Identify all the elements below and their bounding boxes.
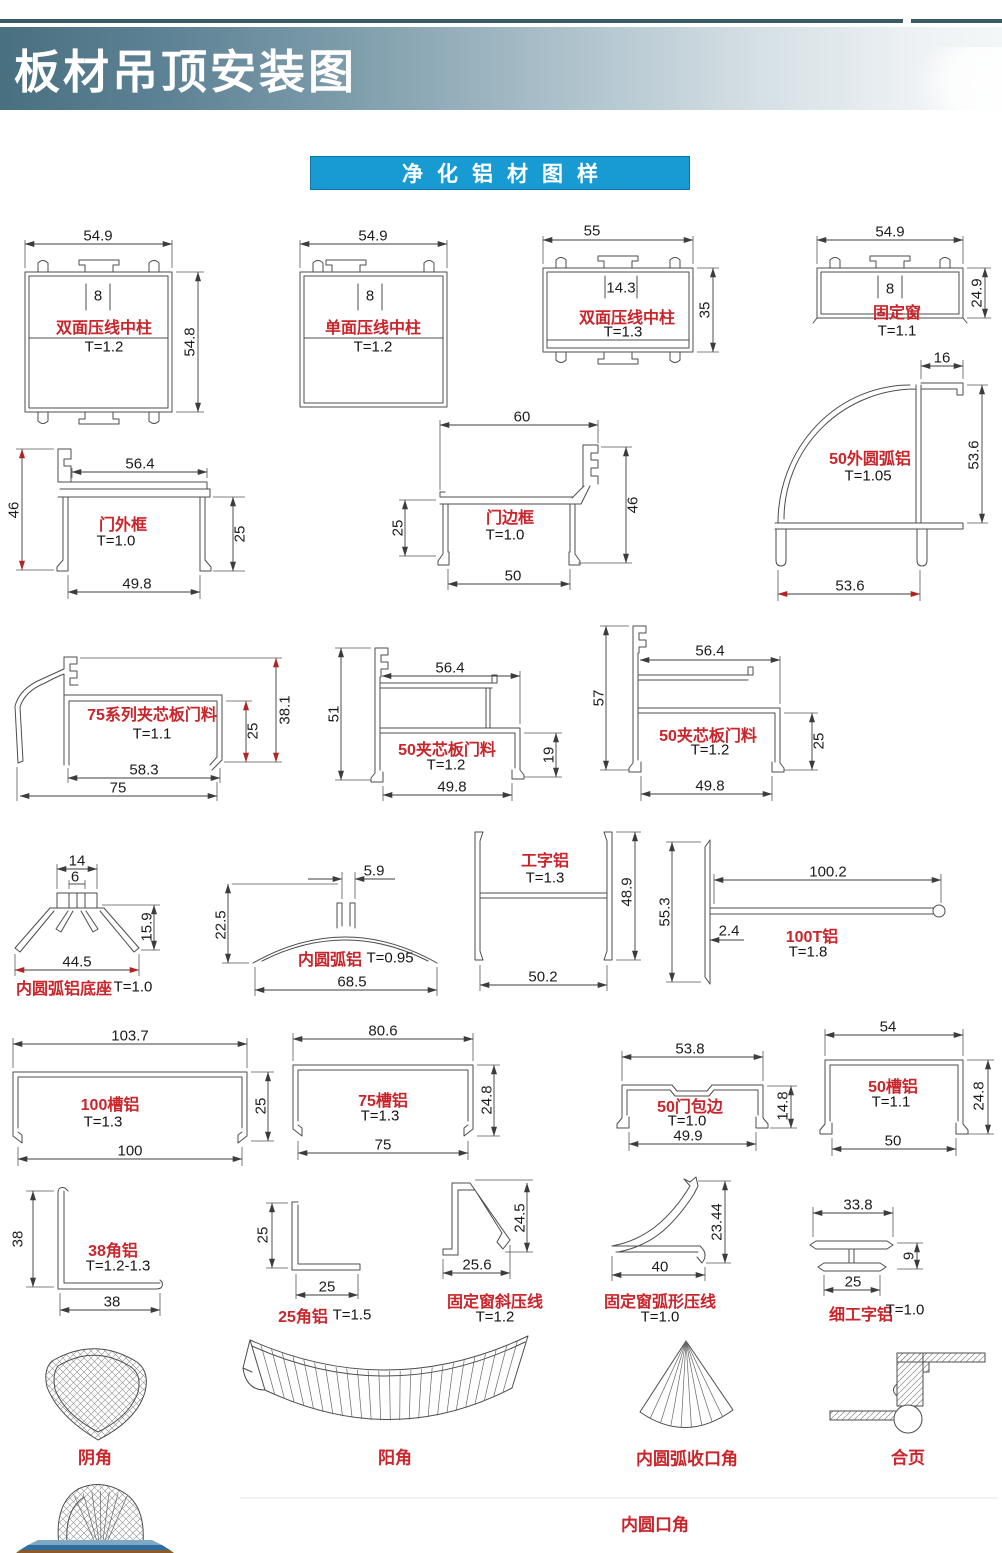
page: 板材吊顶安装图 净化铝材图样 — [0, 0, 1002, 1553]
thickness: T=0.95 — [366, 950, 413, 967]
drawing-double-press-column-2 — [543, 236, 719, 364]
thickness: T=1.2 — [354, 339, 393, 356]
dim-right: 24.8 — [479, 1085, 496, 1114]
dim-side: 24.9 — [969, 278, 986, 307]
dim-bottom: 44.5 — [62, 954, 91, 971]
thickness: T=1.3 — [84, 1114, 123, 1131]
dim-right: 24.5 — [512, 1203, 529, 1232]
thickness: T=1.5 — [333, 1307, 372, 1324]
dim-top: 103.7 — [111, 1028, 149, 1045]
thickness: T=1.2 — [476, 1309, 515, 1326]
profile-name: 门外框 — [99, 511, 147, 535]
dim-right: 9 — [901, 1252, 918, 1260]
dim-bottom: 49.8 — [122, 576, 151, 593]
dim-bottom: 40 — [652, 1259, 669, 1276]
profile-name: 内圆弧铝底座 — [16, 975, 112, 999]
dim-bottom: 68.5 — [337, 974, 366, 991]
drawing-inside-corner — [46, 1349, 147, 1440]
profile-name: 工字铝 — [521, 847, 569, 871]
dim-top: 56.4 — [125, 456, 154, 473]
dim-top: 16 — [934, 350, 951, 367]
dim-right-outer: 38.1 — [277, 695, 294, 724]
accessory-label-hinge: 合页 — [891, 1444, 925, 1469]
dim-top: 54.9 — [358, 228, 387, 245]
dim-right: 53.6 — [966, 440, 983, 469]
profile-name: 固定窗 — [873, 299, 921, 323]
profile-name: 内圆弧铝 — [298, 946, 362, 970]
dim-bottom-inner: 58.3 — [129, 762, 158, 779]
dim-top: 80.6 — [368, 1023, 397, 1040]
dim-right: 25 — [253, 1098, 270, 1115]
dim-right: 14.8 — [775, 1091, 792, 1120]
thickness: T=1.2 — [691, 742, 730, 759]
dim-right: 46 — [625, 497, 642, 514]
thickness: T=1.3 — [604, 324, 643, 341]
accessory-label-outside-corner: 阳角 — [378, 1444, 412, 1469]
thickness: T=1.0 — [641, 1309, 680, 1326]
drawing-100-channel — [13, 1038, 274, 1166]
dim-right-inner: 25 — [245, 723, 262, 740]
thickness: T=1.8 — [789, 944, 828, 961]
dim-side: 35 — [697, 302, 714, 319]
accessory-label-inside-corner: 阴角 — [78, 1444, 112, 1469]
dim-left: 57 — [591, 690, 608, 707]
dim-bottom: 49.9 — [673, 1128, 702, 1145]
thickness: T=1.0 — [97, 533, 136, 550]
thickness: T=1.0 — [886, 1302, 925, 1319]
profile-name: 75系列夹芯板门料 — [87, 701, 217, 725]
thickness: T=1.2 — [427, 757, 466, 774]
dim-slot: 8 — [366, 288, 374, 305]
dim-top: 56.4 — [695, 643, 724, 660]
dim-bottom: 100 — [117, 1143, 142, 1160]
bottom-left-strip-decoration — [16, 1540, 174, 1553]
dim-web: 2.4 — [719, 923, 740, 940]
thickness: T=1.0 — [114, 979, 153, 996]
dim-left: 51 — [326, 706, 343, 723]
dim-bottom: 25 — [319, 1279, 336, 1296]
dim-top: 53.8 — [675, 1041, 704, 1058]
dim-top: 54.9 — [875, 224, 904, 241]
thickness: T=1.3 — [361, 1108, 400, 1125]
thickness: T=1.2 — [85, 339, 124, 356]
dim-top: 54 — [880, 1019, 897, 1036]
dim-slot: 14.3 — [606, 280, 635, 297]
dim-left: 25 — [390, 520, 407, 537]
dim-left: 55.3 — [657, 897, 674, 926]
dim-bottom: 25.6 — [462, 1257, 491, 1274]
dim-right: 25 — [232, 526, 249, 543]
dim-right: 19 — [541, 747, 558, 764]
dim-bottom: 49.8 — [437, 779, 466, 796]
thickness: T=1.2-1.3 — [86, 1258, 151, 1275]
dim-top: 60 — [514, 409, 531, 426]
profile-name: 双面压线中柱 — [56, 314, 152, 338]
drawing-100t-aluminium — [666, 840, 945, 984]
dim-side: 54.8 — [182, 327, 199, 356]
dim-slot: 6 — [71, 869, 79, 886]
dim-right: 23.44 — [709, 1203, 726, 1241]
profile-name: 单面压线中柱 — [325, 314, 421, 338]
dim-bottom: 50.2 — [528, 969, 557, 986]
dim-right: 48.9 — [619, 877, 636, 906]
thickness: T=1.1 — [878, 323, 917, 340]
dim-right: 24.8 — [971, 1081, 988, 1110]
profile-name: 细工字铝 — [829, 1301, 893, 1325]
dim-top: 55 — [584, 223, 601, 240]
drawing-inner-arc — [222, 872, 437, 996]
accessory-label-inner-round-corner: 内圆口角 — [621, 1511, 689, 1536]
dim-bottom: 49.8 — [695, 778, 724, 795]
dim-bottom-outer: 75 — [110, 780, 127, 797]
dim-left: 25 — [255, 1227, 272, 1244]
thickness: T=1.3 — [526, 870, 565, 887]
thickness: T=1.0 — [668, 1113, 707, 1130]
dim-bottom: 38 — [104, 1294, 121, 1311]
dim-bottom: 53.6 — [835, 578, 864, 595]
thickness: T=1.1 — [133, 726, 172, 743]
dim-top: 14 — [69, 853, 86, 870]
accessory-label-arc-closing-corner: 内圆弧收口角 — [636, 1445, 738, 1470]
dim-bottom: 25 — [845, 1274, 862, 1291]
profile-name: 25角铝 — [278, 1303, 328, 1327]
profile-name: 100槽铝 — [81, 1091, 140, 1115]
dim-slot: 8 — [886, 281, 894, 298]
dim-bottom: 50 — [505, 568, 522, 585]
dim-top: 33.8 — [843, 1197, 872, 1214]
dim-top: 56.4 — [435, 660, 464, 677]
dim-left: 38 — [10, 1231, 27, 1248]
thickness: T=1.05 — [844, 468, 891, 485]
drawing-inner-arc-closing-corner — [640, 1341, 733, 1428]
dim-bottom: 75 — [375, 1137, 392, 1154]
dim-bottom: 50 — [885, 1133, 902, 1150]
dim-left: 22.5 — [213, 910, 230, 939]
drawing-hinge — [830, 1353, 985, 1433]
drawing-outside-corner — [243, 1336, 528, 1421]
dim-right: 25 — [811, 733, 828, 750]
dim-top: 100.2 — [809, 864, 847, 881]
dim-slot: 8 — [94, 288, 102, 305]
drawing-25-angle — [266, 1202, 360, 1299]
profile-name: 门边框 — [486, 504, 534, 528]
thickness: T=1.0 — [486, 527, 525, 544]
dim-right: 15.9 — [139, 912, 156, 941]
dim-left: 46 — [6, 502, 23, 519]
profile-name: 50外圆弧铝 — [829, 445, 911, 469]
dim-top: 5.9 — [364, 863, 385, 880]
thickness: T=1.1 — [872, 1094, 911, 1111]
dim-top: 54.9 — [83, 228, 112, 245]
